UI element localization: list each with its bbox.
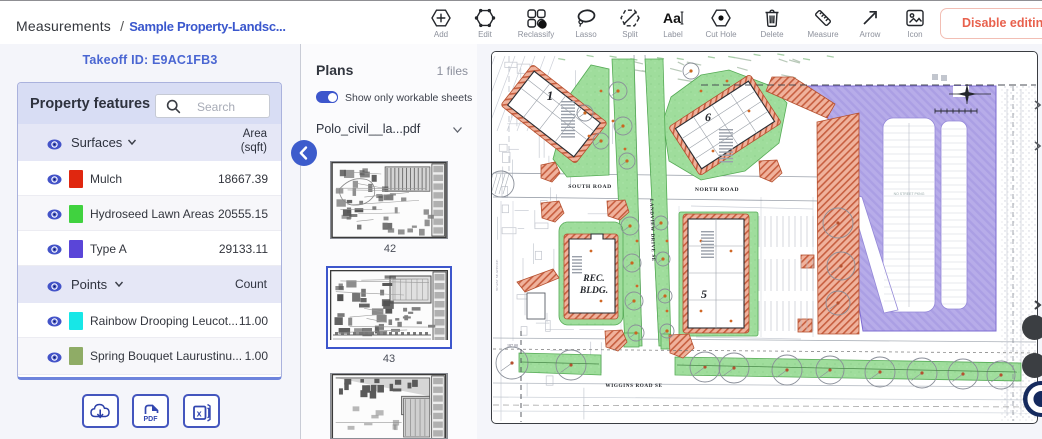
svg-text:NO STREET PKNG: NO STREET PKNG	[894, 192, 925, 196]
svg-text:BLDG.: BLDG.	[579, 286, 608, 296]
svg-text:187.00: 187.00	[507, 343, 518, 348]
svg-text:WIGGINS ROAD SE: WIGGINS ROAD SE	[605, 383, 662, 389]
svg-text:Aa: Aa	[663, 10, 681, 26]
svg-text:x: x	[196, 409, 201, 419]
svg-text:6: 6	[705, 110, 711, 124]
svg-text:PDF: PDF	[143, 416, 158, 423]
svg-text:SOUTH ROAD: SOUTH ROAD	[568, 184, 611, 190]
svg-text:5: 5	[701, 287, 707, 301]
svg-text:80 WAY SE AVENUE: 80 WAY SE AVENUE	[495, 260, 499, 291]
svg-text:1: 1	[547, 88, 554, 103]
svg-text:NORTH ROAD: NORTH ROAD	[695, 187, 739, 193]
svg-text:REC.: REC.	[582, 274, 604, 284]
